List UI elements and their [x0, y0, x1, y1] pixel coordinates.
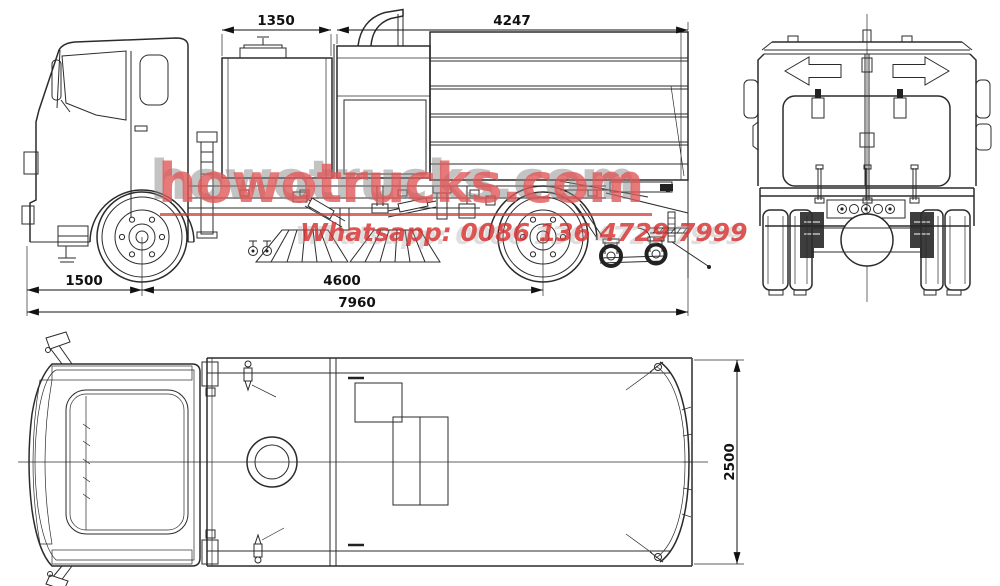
air-intake	[358, 10, 403, 47]
right-arrow-icon	[893, 57, 949, 85]
aux-engine-box	[337, 10, 430, 179]
water-tank-side	[222, 37, 334, 178]
dim-wheelbase: 4600	[323, 273, 361, 289]
blueprint-page: 1350 4247 1500 4600 7960	[0, 0, 1000, 586]
cab-roof	[29, 332, 218, 586]
dim-front-overhang: 1500	[65, 273, 103, 289]
left-arrow-icon	[785, 57, 841, 85]
suction-pipe	[197, 132, 217, 238]
door-window	[62, 51, 126, 120]
dim-overall-length: 7960	[338, 295, 376, 311]
rear-view	[744, 14, 991, 302]
cab-side	[22, 38, 194, 262]
dim-rear-body-length: 4247	[493, 13, 531, 29]
engine-grille	[344, 100, 426, 174]
side-view: 1350 4247 1500 4600 7960	[22, 10, 711, 317]
mirror-top	[46, 332, 70, 349]
castor-wheel	[647, 245, 666, 264]
dim-overall-width: 2500	[722, 443, 738, 481]
dim-front-tank-length: 1350	[257, 13, 295, 29]
door-handle	[135, 126, 147, 131]
sweeper-brush-rear	[350, 186, 451, 262]
top-view: 2500	[18, 332, 744, 586]
tank-hatch	[240, 48, 286, 58]
roof-hatch	[355, 383, 402, 422]
blueprint-canvas: 1350 4247 1500 4600 7960	[0, 0, 1000, 586]
sweeper-brush-front	[256, 192, 349, 262]
trailing-suction-unit	[575, 204, 711, 269]
spray-nozzles	[249, 241, 272, 256]
quarter-window	[140, 55, 168, 105]
